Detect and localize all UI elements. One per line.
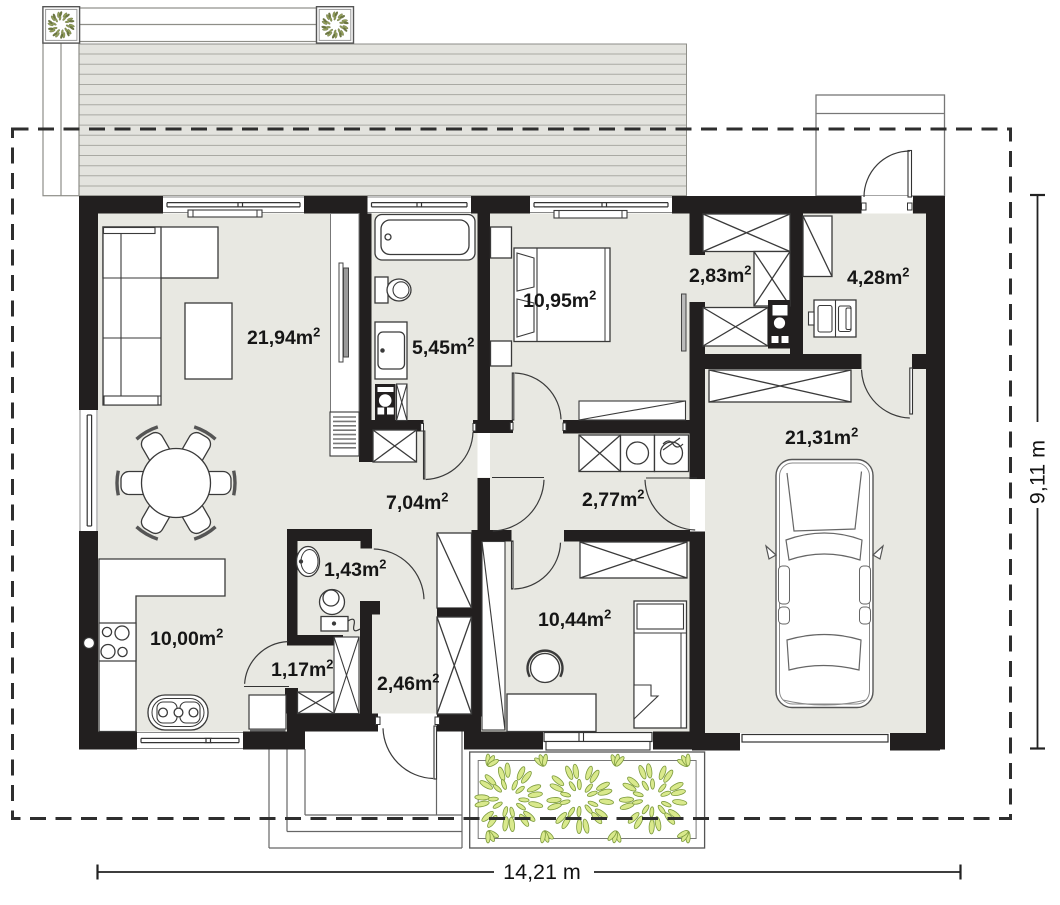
svg-text:2,46m2: 2,46m2 <box>377 671 439 695</box>
svg-text:10,95m2: 10,95m2 <box>523 288 596 312</box>
svg-text:10,44m2: 10,44m2 <box>538 607 611 631</box>
svg-text:2,77m2: 2,77m2 <box>582 487 644 511</box>
svg-text:14,21 m: 14,21 m <box>503 860 581 884</box>
svg-text:10,00m2: 10,00m2 <box>150 626 223 650</box>
svg-text:7,04m2: 7,04m2 <box>386 490 448 514</box>
svg-text:5,45m2: 5,45m2 <box>412 335 474 359</box>
svg-text:2,83m2: 2,83m2 <box>689 263 751 287</box>
svg-text:9,11 m: 9,11 m <box>1026 440 1050 504</box>
svg-text:4,28m2: 4,28m2 <box>847 265 909 289</box>
svg-text:1,43m2: 1,43m2 <box>324 557 386 581</box>
svg-text:21,31m2: 21,31m2 <box>785 425 858 449</box>
svg-text:1,17m2: 1,17m2 <box>271 657 333 681</box>
svg-text:21,94m2: 21,94m2 <box>247 325 320 349</box>
